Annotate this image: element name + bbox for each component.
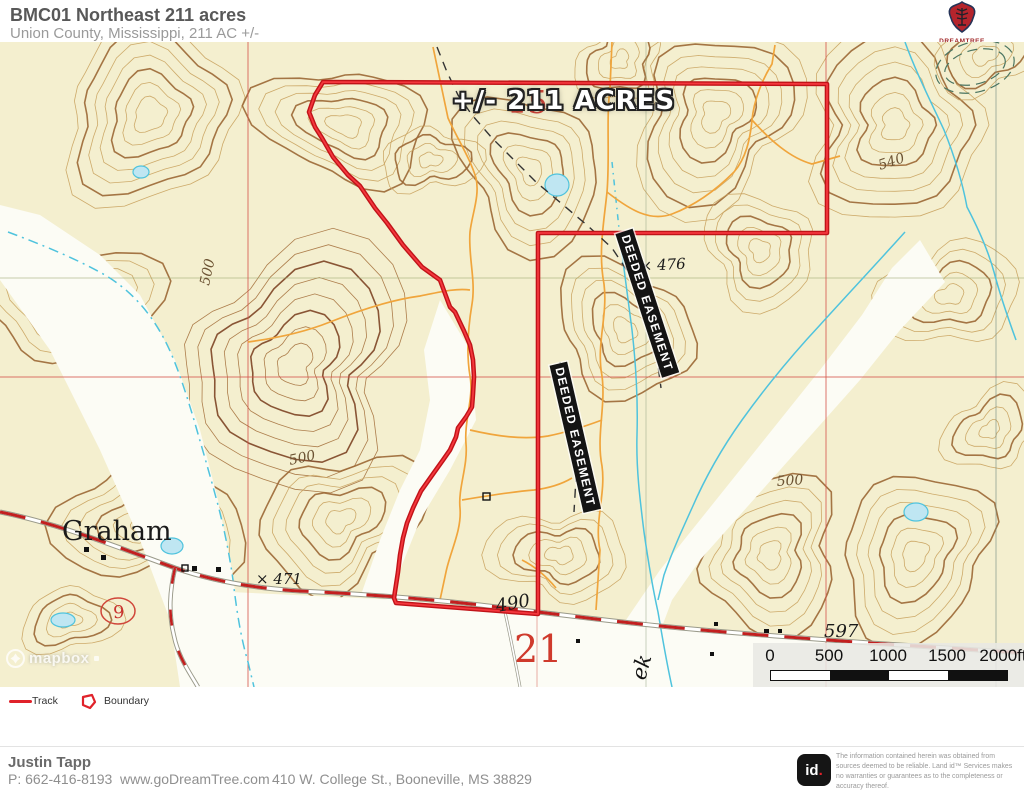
boundary-polygon-swatch [80,693,97,710]
land-id-logo: id. [797,754,831,786]
route-number-9: 9 [113,602,124,623]
dreamtree-logo: DREAMTREE [936,1,988,45]
page-subtitle: Union County, Mississippi, 211 AC +/- [10,25,259,42]
scale-bar: 0 500 1000 1500 2000ft [753,643,1024,687]
topo-map-svg: Graham 15 21 9 × 476 × 471 490 597 540 5… [0,42,1024,687]
scale-tick-1500: 1500 [928,646,966,666]
mapbox-wordmark: mapbox [29,650,90,667]
agent-website[interactable]: www.goDreamTree.com [120,771,270,787]
section-number-21: 21 [514,627,562,671]
disclaimer-text: The information contained herein was obt… [836,752,1020,791]
boundary-legend-label: Boundary [104,695,149,707]
track-line-swatch [9,700,32,703]
contour-label-500-c: 500 [776,472,804,490]
spot-elevation-597: 597 [824,621,859,642]
topo-map-canvas[interactable]: Graham 15 21 9 × 476 × 471 490 597 540 5… [0,42,1024,687]
acreage-label: +/- 211 ACRES [452,86,675,116]
spot-elevation-471: × 471 [256,570,302,588]
footer: Justin Tapp P: 662-416-8193 www.goDreamT… [0,746,1024,791]
land-id-map-page: BMC01 Northeast 211 acres Union County, … [0,0,1024,791]
scale-tick-500: 500 [815,646,843,666]
agent-phone: P: 662-416-8193 [8,771,112,787]
scale-tick-1000: 1000 [869,646,907,666]
mapbox-attribution[interactable]: mapbox [6,649,99,668]
mapbox-icon [6,649,25,668]
scale-tick-0: 0 [765,646,774,666]
arrowhead-tree-icon [945,1,979,33]
page-title: BMC01 Northeast 211 acres [10,5,246,26]
agent-address: 410 W. College St., Booneville, MS 38829 [272,771,532,787]
map-legend: Track Boundary [0,687,1024,746]
agent-name: Justin Tapp [8,754,91,771]
scale-bar-segments [770,670,1008,681]
place-label-graham: Graham [62,516,172,547]
scale-tick-2000: 2000ft [979,646,1024,666]
trademark-mark [94,656,99,661]
track-legend-label: Track [32,695,58,707]
